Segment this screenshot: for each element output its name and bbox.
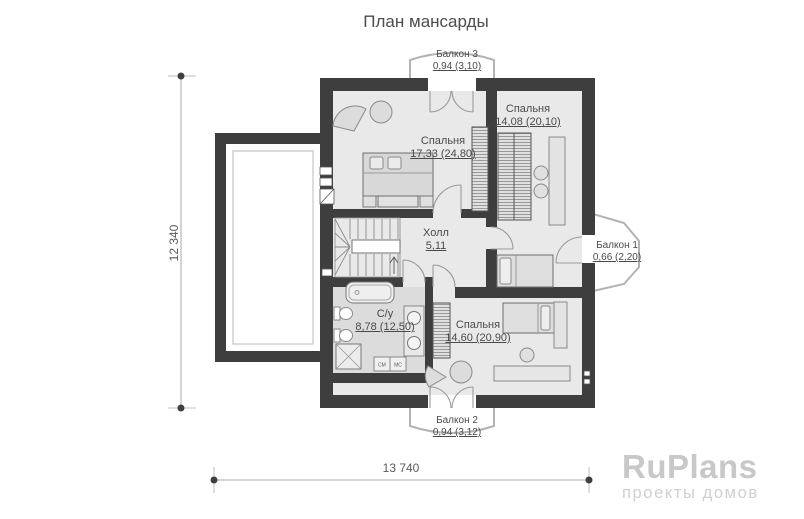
ruplans-logo: RuPlans проекты домов xyxy=(622,451,759,502)
room-area: 5,11 xyxy=(423,240,449,253)
dresser xyxy=(494,366,570,381)
room-name: Спальня xyxy=(410,135,475,148)
logo-text: RuPlans xyxy=(622,451,759,483)
cabinet xyxy=(549,137,565,225)
balcony-name: Балкон 3 xyxy=(433,49,481,61)
balcony-area: 0,94 (3,10) xyxy=(433,61,481,73)
balcony-name: Балкон 1 xyxy=(593,240,641,252)
room-label-bedroom2: Спальня 14,08 (20,10) xyxy=(495,103,560,129)
balcony-label-3: Балкон 3 0,94 (3,10) xyxy=(433,49,481,73)
nightstand xyxy=(420,196,433,207)
room-name: Холл xyxy=(423,227,449,240)
room-area: 14,08 (20,10) xyxy=(495,116,560,129)
bed-foot xyxy=(378,196,418,207)
room-area: 17,33 (24,80) xyxy=(410,148,475,161)
balcony-area: 0,66 (2,20) xyxy=(593,252,641,264)
stool xyxy=(534,166,548,180)
left-wing-void xyxy=(226,144,320,351)
sink xyxy=(408,337,421,350)
room-label-bedroom1: Спальня 17,33 (24,80) xyxy=(410,135,475,161)
balcony-name: Балкон 2 xyxy=(433,415,481,427)
balcony-area: 0,94 (3,12) xyxy=(433,427,481,439)
floor-plan-drawing: СМ МС xyxy=(0,0,804,519)
room-name: С/у xyxy=(355,308,414,321)
cabinet xyxy=(554,302,567,348)
room-label-bathroom: С/у 8,78 (12,50) xyxy=(355,308,414,334)
stool xyxy=(534,184,548,198)
nightstand xyxy=(363,196,376,207)
dryer-label: МС xyxy=(394,363,402,369)
logo-tagline: проекты домов xyxy=(622,484,759,502)
round-armchair xyxy=(450,361,472,383)
balcony-label-1: Балкон 1 0,66 (2,20) xyxy=(593,240,641,264)
round-chair xyxy=(370,101,392,123)
dimension-height-label: 12 340 xyxy=(167,225,181,262)
room-area: 14,60 (20,90) xyxy=(445,332,510,345)
dimension-width-label: 13 740 xyxy=(383,461,420,475)
floor-plan-page: План мансарды xyxy=(0,0,804,519)
room-label-bedroom3: Спальня 14,60 (20,90) xyxy=(445,319,510,345)
room-label-hall: Холл 5,11 xyxy=(423,227,449,253)
room-area: 8,78 (12,50) xyxy=(355,321,414,334)
washer-label: СМ xyxy=(378,363,386,369)
balcony-label-2: Балкон 2 0,94 (3,12) xyxy=(433,415,481,439)
stool xyxy=(520,348,534,362)
room-name: Спальня xyxy=(445,319,510,332)
room-name: Спальня xyxy=(495,103,560,116)
